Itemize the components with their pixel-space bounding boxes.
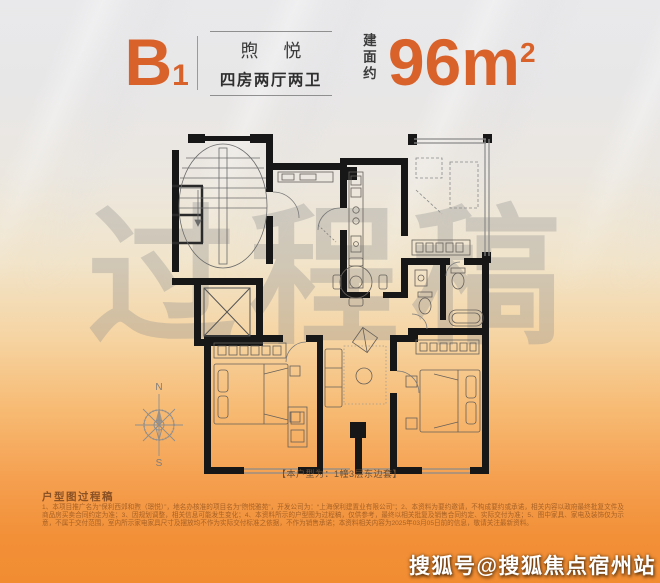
bedroom-left-bed bbox=[214, 364, 300, 424]
staircase bbox=[179, 144, 267, 268]
unit-code-number: 1 bbox=[172, 59, 189, 92]
dashed-furniture bbox=[416, 158, 478, 214]
sohu-watermark: 搜狐号@搜狐焦点宿州站 bbox=[409, 550, 656, 580]
unit-code: B1 bbox=[124, 33, 188, 92]
master-bed bbox=[406, 370, 480, 432]
elevator bbox=[204, 288, 250, 336]
floorplan-svg bbox=[168, 130, 498, 482]
compass-south-label: S bbox=[156, 458, 163, 468]
plan-caption: 【本户型为：1幢3层东边套】 bbox=[277, 467, 402, 480]
balcony bbox=[288, 407, 307, 447]
title-rule-bottom bbox=[210, 95, 332, 96]
page: 过程稿 B1 煦 悦 四房两厅两卫 建面约 96m2 bbox=[0, 0, 660, 583]
bathroom-fixtures bbox=[415, 268, 483, 326]
living-sofa bbox=[325, 327, 386, 407]
title-block: 煦 悦 四房两厅两卫 bbox=[210, 31, 332, 96]
compass-icon: N S bbox=[126, 380, 192, 468]
layout-description: 四房两厅两卫 bbox=[220, 68, 322, 90]
area-label: 建面约 bbox=[358, 33, 378, 93]
title-rule-top bbox=[210, 31, 332, 32]
header: B1 煦 悦 四房两厅两卫 建面约 96m2 bbox=[0, 24, 660, 102]
area-value: 96m2 bbox=[388, 33, 536, 92]
windows bbox=[244, 139, 489, 473]
kitchen-counter bbox=[278, 172, 363, 288]
project-name: 煦 悦 bbox=[230, 37, 311, 63]
disclaimer-text: 1、本项目推广名为“保利西郊和煦（璟悦）”，地名办核准的项目名为“煦悦雅苑”，开… bbox=[42, 504, 624, 528]
compass-north-label: N bbox=[155, 382, 162, 393]
header-divider bbox=[197, 36, 198, 90]
area-exponent: 2 bbox=[520, 37, 536, 68]
footer-title: 户型图过程稿 bbox=[42, 489, 114, 504]
unit-code-letter: B bbox=[124, 25, 172, 99]
area-number: 96m bbox=[388, 25, 520, 99]
